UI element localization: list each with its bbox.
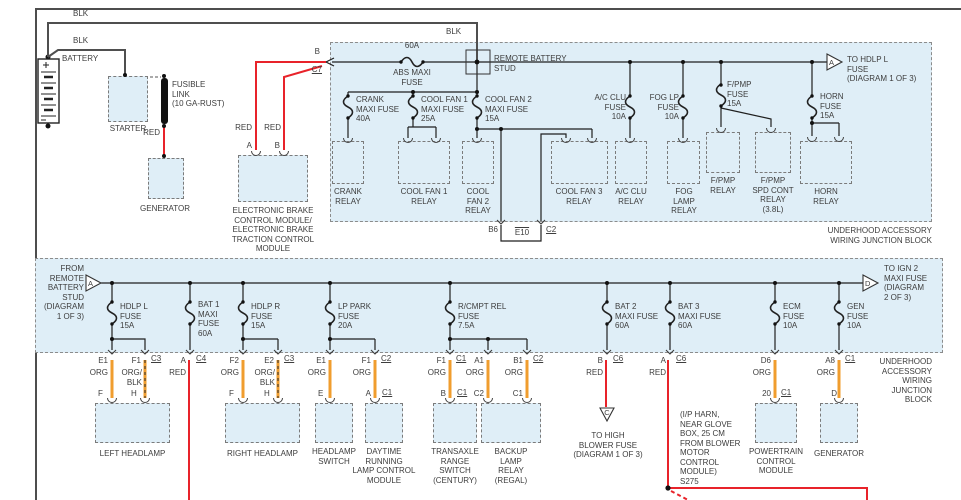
conn-c3-lh: C3 xyxy=(151,354,161,364)
pin-f2-rh: F2 xyxy=(225,356,239,366)
blk-label-mid: BLK xyxy=(73,36,88,46)
wire-color: RED xyxy=(583,368,603,378)
dest-pin-a-drl: A xyxy=(359,389,371,399)
pin-f1-drl: F1 xyxy=(357,356,371,366)
ebcm-label: ELECTRONIC BRAKE CONTROL MODULE/ ELECTRO… xyxy=(225,206,321,254)
e10-riser-wire xyxy=(541,134,566,221)
dest-pin-h-lh: H xyxy=(131,389,137,399)
conn-c4: C4 xyxy=(196,354,206,364)
bat3-fuse-label: BAT 3 MAXI FUSE 60A xyxy=(678,302,721,331)
abs-fuse-label: ABS MAXI FUSE xyxy=(390,68,434,87)
wire-color: ORG xyxy=(351,368,371,378)
remote-battery-stud-label: REMOTE BATTERY STUD xyxy=(494,54,567,73)
cf1-relay-label: COOL FAN 1 RELAY xyxy=(396,187,452,206)
pin-e1-lh: E1 xyxy=(94,356,108,366)
fusible-link-icon xyxy=(161,78,168,124)
from-remote-stud-label: FROM REMOTE BATTERY STUD (DIAGRAM 1 OF 3… xyxy=(38,264,84,321)
pin-b6: B6 xyxy=(482,225,498,235)
pin-a-bat3: A xyxy=(654,356,666,366)
conn-c1-trans: C1 xyxy=(456,354,466,364)
wire-color: ORG xyxy=(88,368,108,378)
wire-color: ORG/ BLK xyxy=(118,368,142,387)
cf2-relay-label: COOL FAN 2 RELAY xyxy=(452,187,504,216)
backup-relay-label: BACKUP LAMP RELAY (REGAL) xyxy=(483,447,539,485)
wire-color: ORG xyxy=(751,368,771,378)
to-ign2-label: TO IGN 2 MAXI FUSE (DIAGRAM 2 OF 3) xyxy=(884,264,927,302)
wiring-diagram-page: A A D C BLK BLK BLK BATTERY STARTER FUSI… xyxy=(0,0,961,500)
bat2-fuse-label: BAT 2 MAXI FUSE 60A xyxy=(615,302,658,331)
dest-pin-20: 20 xyxy=(757,389,771,399)
wire-color: ORG xyxy=(426,368,446,378)
pin-a1: A1 xyxy=(470,356,484,366)
conn-c7: C7 xyxy=(304,65,322,75)
right-headlamp-label: RIGHT HEADLAMP xyxy=(215,449,310,459)
conn-c1-gen: C1 xyxy=(845,354,855,364)
ac-clu-relay-label: A/C CLU RELAY xyxy=(604,187,658,206)
fpmp-spd-relay-label: F/PMP SPD CONT RELAY (3.8L) xyxy=(744,176,802,214)
ecm-fuse-label: ECM FUSE 10A xyxy=(783,302,804,331)
cf3-relay-label: COOL FAN 3 RELAY xyxy=(546,187,612,206)
ebcm-red-a-label: RED xyxy=(232,123,252,133)
pin-b1: B1 xyxy=(509,356,523,366)
blk-label-top: BLK xyxy=(73,9,88,19)
conn-c2-upper: C2 xyxy=(546,225,556,235)
pin-e1-switch: E1 xyxy=(312,356,326,366)
dest-pin-b-trans: B xyxy=(434,389,446,399)
bat1-fuse-label: BAT 1 MAXI FUSE 60A xyxy=(198,300,220,338)
daytime-running-label: DAYTIME RUNNING LAMP CONTROL MODULE xyxy=(352,447,416,485)
pin-b-bat2: B xyxy=(591,356,603,366)
red-splice-branch xyxy=(671,491,688,500)
upper-block-title: UNDERHOOD ACCESSORY WIRING JUNCTION BLOC… xyxy=(780,226,932,245)
fpmp-fuse-label: F/PMP FUSE 15A xyxy=(727,80,751,109)
dest-pin-c1-backup: C1 xyxy=(507,389,523,399)
lppark-fuse-label: LP PARK FUSE 20A xyxy=(338,302,371,331)
triangle-c-letter: C xyxy=(604,408,610,417)
conn-c3-rh: C3 xyxy=(284,354,294,364)
triangle-a-lower-letter: A xyxy=(88,279,93,288)
horn-fuse-label: HORN FUSE 15A xyxy=(820,92,844,121)
lower-block-title: UNDERHOOD ACCESSORY WIRING JUNCTION BLOC… xyxy=(870,357,932,405)
lower-fuse-drops xyxy=(112,283,839,302)
pin-f1-trans: F1 xyxy=(432,356,446,366)
battery-label: BATTERY xyxy=(62,54,98,64)
fusible-link-label: FUSIBLE LINK (10 GA-RUST) xyxy=(172,80,224,109)
conn-c6-bat2: C6 xyxy=(613,354,623,364)
ac-clu-fuse-label: A/C CLU FUSE 10A xyxy=(590,93,626,122)
hdlpr-fuse-label: HDLP R FUSE 15A xyxy=(251,302,280,331)
wire-color: ORG xyxy=(503,368,523,378)
fog-fuse-label: FOG LP FUSE 10A xyxy=(643,93,679,122)
ebcm-red-b-label: RED xyxy=(261,123,281,133)
transaxle-label: TRANSAXLE RANGE SWITCH (CENTURY) xyxy=(427,447,483,485)
conn-c6-bat3: C6 xyxy=(676,354,686,364)
wire-color: ORG/ BLK xyxy=(251,368,275,387)
dest-pin-h-rh: H xyxy=(264,389,270,399)
fpmp-relay-label: F/PMP RELAY xyxy=(697,176,749,195)
wire-color: ORG xyxy=(815,368,835,378)
red-ebcm-b xyxy=(284,66,322,150)
battery-icon xyxy=(38,55,59,129)
to-hdlp-label: TO HDLP L FUSE (DIAGRAM 1 OF 3) xyxy=(847,55,916,84)
wire-color: ORG xyxy=(219,368,239,378)
wire-color: ORG xyxy=(464,368,484,378)
abs-fuse-amp: 60A xyxy=(396,41,428,51)
crank-fuse-label: CRANK MAXI FUSE 40A xyxy=(356,95,399,124)
wire-color: ORG xyxy=(306,368,326,378)
blk-label-stud: BLK xyxy=(446,27,461,37)
pin-a-bat1: A xyxy=(174,356,186,366)
generator-bottom-label: GENERATOR xyxy=(809,449,869,459)
triangle-a-upper-letter: A xyxy=(829,58,834,67)
pin-a8: A8 xyxy=(821,356,835,366)
hdlpl-fuse-label: HDLP L FUSE 15A xyxy=(120,302,148,331)
wiring-canvas: A A D C xyxy=(0,0,961,500)
pin-e2-rh: E2 xyxy=(260,356,274,366)
left-headlamp-label: LEFT HEADLAMP xyxy=(85,449,180,459)
dest-pin-c2-backup: C2 xyxy=(468,389,484,399)
splice-note: (I/P HARN, NEAR GLOVE BOX, 25 CM FROM BL… xyxy=(680,410,740,486)
pin-d6: D6 xyxy=(757,356,771,366)
generator-label: GENERATOR xyxy=(134,204,196,214)
dest-pin-f-lh: F xyxy=(98,389,103,399)
wire-color: RED xyxy=(646,368,666,378)
triangle-d-letter: D xyxy=(865,279,871,288)
crank-relay-label: CRANK RELAY xyxy=(322,187,374,206)
dest-conn-c1-pcm: C1 xyxy=(781,388,791,398)
to-high-blower-label: TO HIGH BLOWER FUSE (DIAGRAM 1 OF 3) xyxy=(570,431,646,460)
gen-fuse-label: GEN FUSE 10A xyxy=(847,302,868,331)
dest-pin-e: E xyxy=(318,389,323,399)
dest-pin-f-rh: F xyxy=(229,389,234,399)
wire-color: RED xyxy=(166,368,186,378)
dest-pin-d-gen: D xyxy=(827,389,837,399)
dest-conn-c1-trans: C1 xyxy=(457,388,467,398)
cf1-fuse-label: COOL FAN 1 MAXI FUSE 25A xyxy=(421,95,468,124)
pin-f1-lh: F1 xyxy=(127,356,141,366)
conn-c2-drl: C2 xyxy=(381,354,391,364)
conn-c2-backup: C2 xyxy=(533,354,543,364)
pcm-label: POWERTRAIN CONTROL MODULE xyxy=(745,447,807,476)
red-label-generator: RED xyxy=(136,128,160,138)
cf2-fuse-label: COOL FAN 2 MAXI FUSE 15A xyxy=(485,95,532,124)
pin-e10: E10 xyxy=(511,228,533,238)
horn-relay-label: HORN RELAY xyxy=(800,187,852,206)
rcmpt-fuse-label: R/CMPT REL FUSE 7.5A xyxy=(458,302,506,331)
pin-b-c7: B xyxy=(306,47,320,57)
dest-conn-c1-drl: C1 xyxy=(382,388,392,398)
ebcm-pin-b: B xyxy=(268,141,280,151)
connector-triangles xyxy=(86,54,878,421)
ebcm-pin-a: A xyxy=(240,141,252,151)
